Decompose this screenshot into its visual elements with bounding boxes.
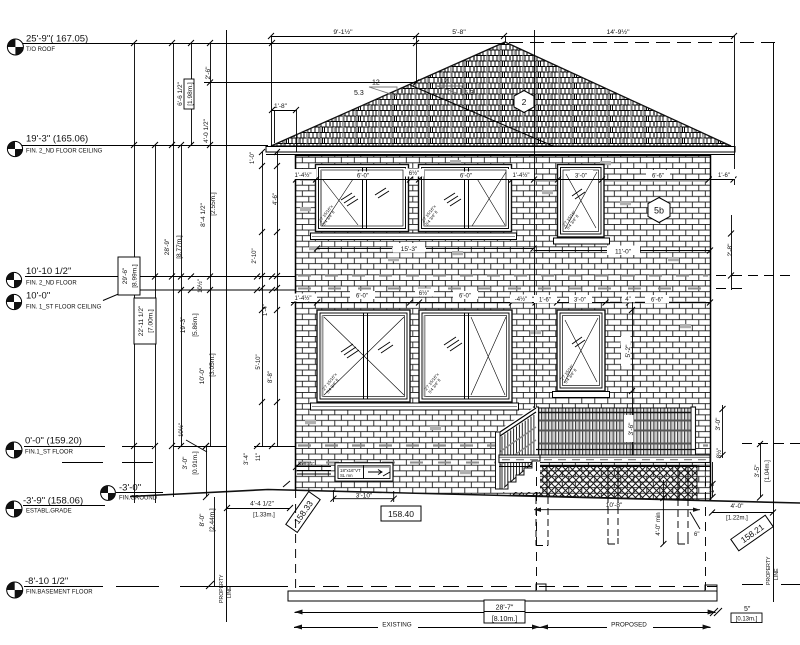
- svg-text:[8.99m.]: [8.99m.]: [132, 264, 139, 288]
- svg-text:1'-6": 1'-6": [539, 298, 551, 304]
- svg-text:12: 12: [372, 80, 380, 87]
- svg-text:22'-11 1/2": 22'-11 1/2": [138, 305, 145, 336]
- svg-text:28'-7": 28'-7": [496, 605, 514, 612]
- svg-text:2'-10": 2'-10": [252, 248, 258, 263]
- svg-text:FIN. 2_ND FLOOR: FIN. 2_ND FLOOR: [26, 281, 77, 287]
- svg-text:4'-6": 4'-6": [273, 193, 279, 205]
- svg-text:PROPOSED: PROPOSED: [611, 622, 647, 629]
- svg-text:1'-6": 1'-6": [718, 173, 730, 179]
- svg-text:FIN.BASEMENT FLOOR: FIN.BASEMENT FLOOR: [26, 590, 93, 596]
- svg-text:8'-8": 8'-8": [268, 371, 274, 383]
- svg-text:1'-4½": 1'-4½": [295, 295, 312, 302]
- svg-text:SL mn: SL mn: [340, 473, 353, 478]
- svg-text:[8.10m.]: [8.10m.]: [492, 616, 517, 623]
- svg-text:10'-8": 10'-8": [606, 502, 623, 509]
- svg-text:5b: 5b: [654, 206, 664, 216]
- svg-text:158.40: 158.40: [388, 509, 414, 519]
- svg-text:[5.86m.]: [5.86m.]: [192, 313, 199, 337]
- svg-text:6'-0": 6'-0": [459, 294, 471, 300]
- svg-text:FIN.GROUND: FIN.GROUND: [119, 496, 158, 502]
- svg-text:10'-0": 10'-0": [199, 367, 206, 384]
- svg-text:[2.55m.]: [2.55m.]: [210, 192, 217, 216]
- svg-text:3'-0": 3'-0": [575, 174, 587, 180]
- svg-text:12: 12: [440, 79, 448, 86]
- svg-text:-4½": -4½": [515, 296, 527, 303]
- svg-text:3'-0": 3'-0": [182, 456, 189, 470]
- svg-text:6'-0": 6'-0": [356, 294, 368, 300]
- svg-text:15'-3": 15'-3": [401, 246, 418, 253]
- svg-text:5.3: 5.3: [354, 90, 364, 97]
- svg-text:LINE: LINE: [227, 586, 233, 598]
- svg-text:28'-9": 28'-9": [164, 238, 171, 255]
- svg-text:1'-4½": 1'-4½": [513, 172, 530, 179]
- svg-text:25'-9"( 167.05): 25'-9"( 167.05): [26, 34, 88, 45]
- svg-text:5'-2": 5'-2": [625, 344, 632, 358]
- svg-text:[0.91m.]: [0.91m.]: [192, 451, 199, 475]
- svg-text:ESTABL.GRADE: ESTABL.GRADE: [26, 509, 72, 515]
- svg-text:14'-9½": 14'-9½": [607, 28, 631, 36]
- svg-text:4'-8 1/2": 4'-8 1/2": [299, 461, 315, 466]
- svg-text:4'-0": 4'-0": [731, 503, 745, 510]
- svg-text:11": 11": [256, 453, 262, 461]
- svg-text:FIN. 2_ND FLOOR CEILING: FIN. 2_ND FLOOR CEILING: [26, 149, 103, 155]
- svg-text:19'-3" (165.06): 19'-3" (165.06): [26, 134, 88, 145]
- svg-text:1'-0": 1'-0": [710, 481, 716, 493]
- svg-text:3'-4": 3'-4": [244, 453, 250, 465]
- svg-text:PROPERTY: PROPERTY: [219, 574, 225, 603]
- svg-text:-3'-0": -3'-0": [119, 483, 141, 494]
- svg-text:2'-6": 2'-6": [205, 66, 212, 80]
- svg-text:6'-6": 6'-6": [651, 298, 663, 304]
- svg-text:[3.05m.]: [3.05m.]: [209, 353, 216, 377]
- svg-text:6'-0": 6'-0": [357, 174, 369, 180]
- svg-text:2: 2: [522, 97, 527, 107]
- svg-text:1'-4½": 1'-4½": [295, 172, 312, 179]
- svg-text:1'-8": 1'-8": [274, 103, 288, 110]
- svg-text:8½": 8½": [716, 448, 723, 458]
- svg-text:FIN.1_ST FLOOR: FIN.1_ST FLOOR: [25, 450, 74, 456]
- svg-text:2'-8": 2'-8": [727, 243, 734, 257]
- svg-text:6½": 6½": [419, 290, 429, 297]
- svg-text:[7.00m.]: [7.00m.]: [148, 309, 155, 333]
- svg-text:3'-6": 3'-6": [628, 422, 635, 436]
- svg-text:0'-0" (159.20): 0'-0" (159.20): [25, 436, 82, 447]
- svg-text:29'-6": 29'-6": [122, 267, 129, 284]
- svg-text:4": 4": [625, 297, 630, 303]
- svg-text:6'-6": 6'-6": [652, 174, 664, 180]
- svg-text:4'-0" min: 4'-0" min: [656, 512, 662, 535]
- svg-text:9'-1½": 9'-1½": [333, 28, 353, 36]
- svg-text:3'-0": 3'-0": [574, 298, 586, 304]
- svg-text:[1.22m.]: [1.22m.]: [726, 516, 748, 522]
- svg-text:[2.44m.]: [2.44m.]: [209, 508, 216, 532]
- svg-text:PROPERTY: PROPERTY: [766, 556, 772, 585]
- svg-text:10'-0": 10'-0": [26, 291, 50, 302]
- svg-text:6½": 6½": [409, 170, 419, 177]
- svg-text:10'-10 1/2": 10'-10 1/2": [26, 266, 71, 277]
- svg-text:3'-0": 3'-0": [715, 417, 722, 431]
- svg-text:6'-6 1/2": 6'-6 1/2": [177, 81, 184, 105]
- svg-text:FIN. 1_ST FLOOR CEILING: FIN. 1_ST FLOOR CEILING: [26, 305, 102, 311]
- svg-text:LINE: LINE: [774, 568, 780, 580]
- svg-text:5.3: 5.3: [464, 90, 474, 97]
- svg-text:4'-4 1/2": 4'-4 1/2": [250, 501, 274, 508]
- svg-text:6'-0": 6'-0": [460, 174, 472, 180]
- svg-text:5'-8": 5'-8": [452, 29, 466, 36]
- svg-text:EXISTING: EXISTING: [382, 622, 411, 629]
- svg-text:[1.33m.]: [1.33m.]: [253, 513, 275, 519]
- svg-text:10½": 10½": [178, 423, 185, 437]
- svg-text:3'-10": 3'-10": [356, 493, 373, 500]
- svg-text:[1.98m.]: [1.98m.]: [187, 82, 194, 106]
- svg-text:T/O ROOF: T/O ROOF: [26, 47, 55, 53]
- svg-text:6": 6": [694, 532, 699, 538]
- svg-text:5'-10": 5'-10": [256, 354, 262, 369]
- svg-text:-8'-10 1/2": -8'-10 1/2": [25, 576, 68, 587]
- svg-text:11'-0": 11'-0": [615, 249, 632, 256]
- svg-text:10½": 10½": [197, 279, 204, 293]
- svg-text:[0.13m.]: [0.13m.]: [736, 617, 758, 623]
- svg-text:4'-0 1/2": 4'-0 1/2": [203, 118, 210, 142]
- svg-text:1'-4": 1'-4": [263, 304, 269, 316]
- svg-text:3'-5": 3'-5": [754, 464, 761, 478]
- svg-text:1'-0": 1'-0": [250, 152, 256, 164]
- svg-text:[1.04m.]: [1.04m.]: [765, 460, 771, 482]
- svg-text:19'-3": 19'-3": [180, 316, 187, 333]
- svg-text:5": 5": [744, 606, 751, 613]
- svg-text:8'-0": 8'-0": [199, 513, 206, 527]
- svg-text:8'-4 1/2": 8'-4 1/2": [200, 202, 207, 226]
- svg-text:-3'-9" (158.06): -3'-9" (158.06): [23, 496, 83, 507]
